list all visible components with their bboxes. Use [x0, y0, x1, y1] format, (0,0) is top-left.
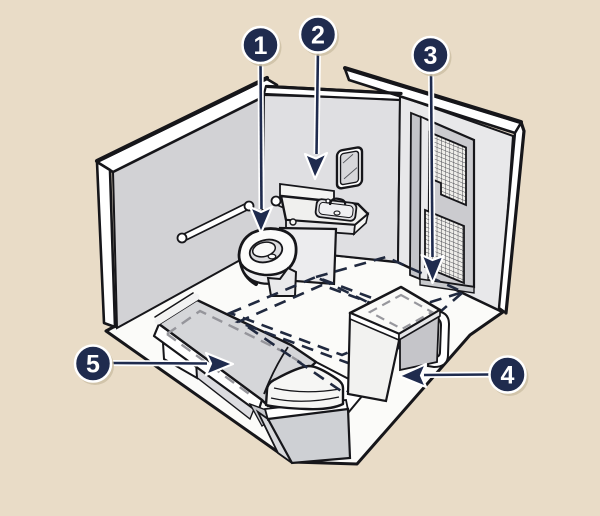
svg-text:5: 5	[86, 351, 100, 379]
svg-text:4: 4	[501, 362, 515, 390]
svg-text:3: 3	[424, 42, 438, 70]
svg-text:2: 2	[311, 22, 325, 50]
svg-text:1: 1	[254, 32, 268, 60]
